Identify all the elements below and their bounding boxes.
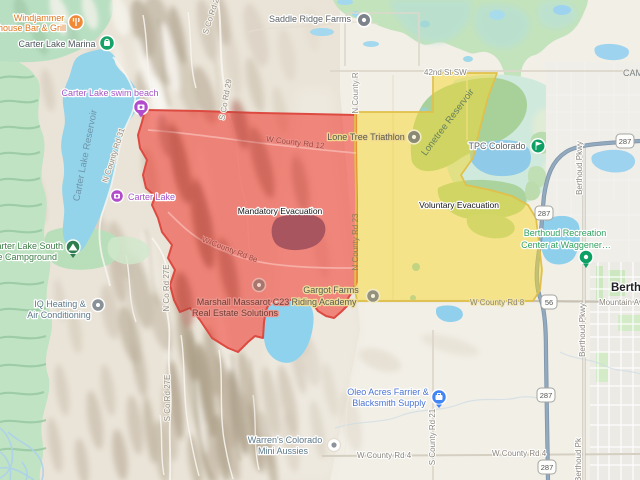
svg-text:Riding Academy: Riding Academy xyxy=(291,297,357,307)
svg-text:Center at Waggener…: Center at Waggener… xyxy=(521,240,611,250)
svg-text:S County Rd 21: S County Rd 21 xyxy=(428,408,437,465)
svg-text:287: 287 xyxy=(619,137,632,146)
svg-text:Carter Lake: Carter Lake xyxy=(128,192,175,202)
svg-text:Blacksmith Supply: Blacksmith Supply xyxy=(352,398,426,408)
svg-text:Mandatory Evacuation: Mandatory Evacuation xyxy=(238,206,323,216)
svg-text:N County Rd 23: N County Rd 23 xyxy=(351,213,360,270)
svg-text:Gargot Farms: Gargot Farms xyxy=(303,285,359,295)
svg-text:Mini Aussies: Mini Aussies xyxy=(258,446,309,456)
svg-text:Carter Lake South: Carter Lake South xyxy=(0,241,63,251)
svg-text:Warren's Colorado: Warren's Colorado xyxy=(248,435,322,445)
svg-text:TPC Colorado: TPC Colorado xyxy=(468,141,525,151)
svg-text:Air Conditioning: Air Conditioning xyxy=(27,310,91,320)
svg-text:Berthoud Recreation: Berthoud Recreation xyxy=(524,228,607,238)
svg-text:Berthoud Pkwy: Berthoud Pkwy xyxy=(578,303,587,357)
svg-text:Mountain Ave: Mountain Ave xyxy=(599,298,640,307)
svg-text:house Bar & Grill: house Bar & Grill xyxy=(0,23,66,33)
svg-text:N County R: N County R xyxy=(351,72,360,114)
svg-text:Oleo Acres Farrier &: Oleo Acres Farrier & xyxy=(347,387,429,397)
svg-text:287: 287 xyxy=(541,463,554,472)
svg-text:Windjammer: Windjammer xyxy=(14,13,65,23)
svg-text:Berthoud: Berthoud xyxy=(611,282,640,294)
svg-text:IQ Heating &: IQ Heating & xyxy=(34,299,86,309)
svg-text:Saddle Ridge Farms: Saddle Ridge Farms xyxy=(269,14,352,24)
svg-text:Real Estate Solutions: Real Estate Solutions xyxy=(192,308,279,318)
svg-text:Shore Campground: Shore Campground xyxy=(0,252,57,262)
svg-text:N Co Rd 27E: N Co Rd 27E xyxy=(162,264,171,311)
svg-text:Carter Lake Marina: Carter Lake Marina xyxy=(18,39,95,49)
svg-text:42nd St SW: 42nd St SW xyxy=(424,68,467,77)
svg-text:56: 56 xyxy=(545,298,553,307)
svg-text:Lone Tree Triathlon: Lone Tree Triathlon xyxy=(327,132,405,142)
svg-text:287: 287 xyxy=(538,209,551,218)
svg-text:Marshall Massarot C23: Marshall Massarot C23 xyxy=(197,297,290,307)
svg-text:Carter Lake swim beach: Carter Lake swim beach xyxy=(61,88,158,98)
svg-text:Voluntary Evacuation: Voluntary Evacuation xyxy=(419,200,499,210)
svg-text:CAM: CAM xyxy=(623,68,640,78)
svg-text:S Co Rd 27E: S Co Rd 27E xyxy=(163,375,172,422)
svg-text:W County Rd 4: W County Rd 4 xyxy=(492,449,547,458)
svg-text:287: 287 xyxy=(540,391,553,400)
svg-text:Berthoud Pkwy: Berthoud Pkwy xyxy=(575,141,584,195)
svg-text:W County Rd 4: W County Rd 4 xyxy=(357,451,412,460)
svg-text:Berthoud Pk: Berthoud Pk xyxy=(574,437,583,480)
svg-text:W County Rd 8: W County Rd 8 xyxy=(470,298,525,307)
